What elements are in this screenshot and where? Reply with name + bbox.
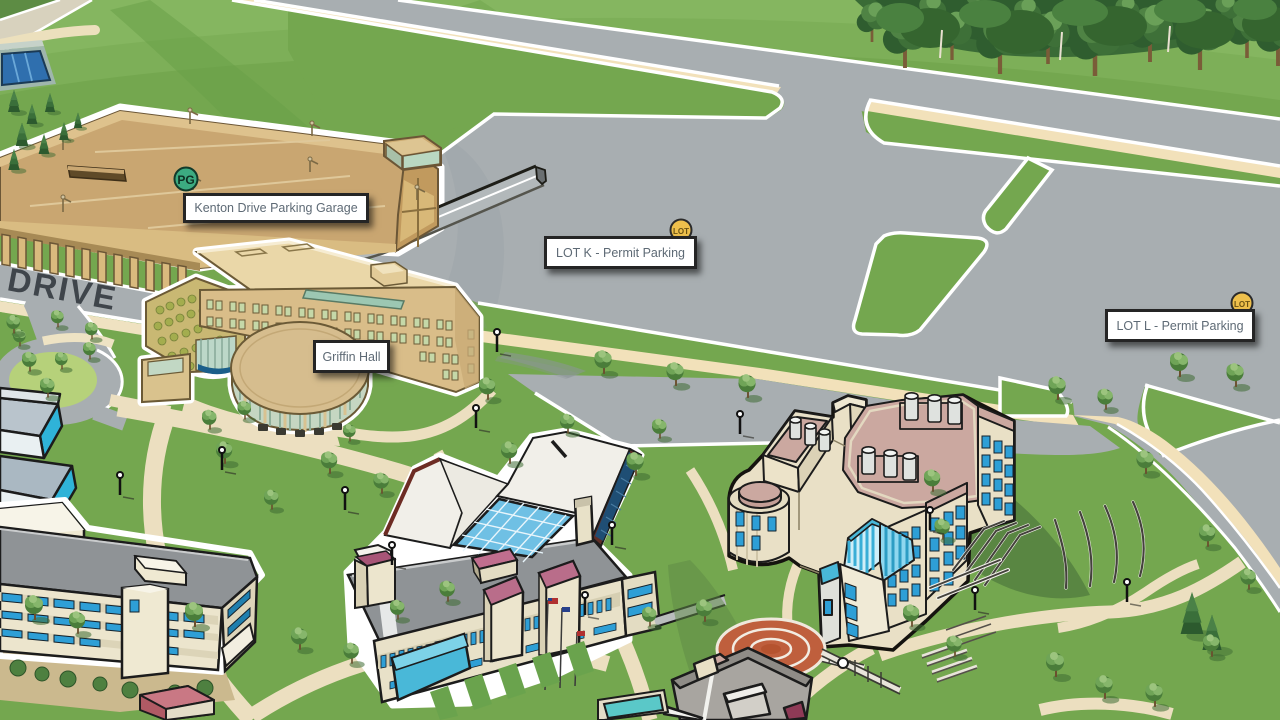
svg-text:LOT: LOT: [1234, 300, 1250, 309]
svg-text:PG: PG: [177, 173, 194, 187]
svg-text:LOT: LOT: [673, 227, 689, 236]
